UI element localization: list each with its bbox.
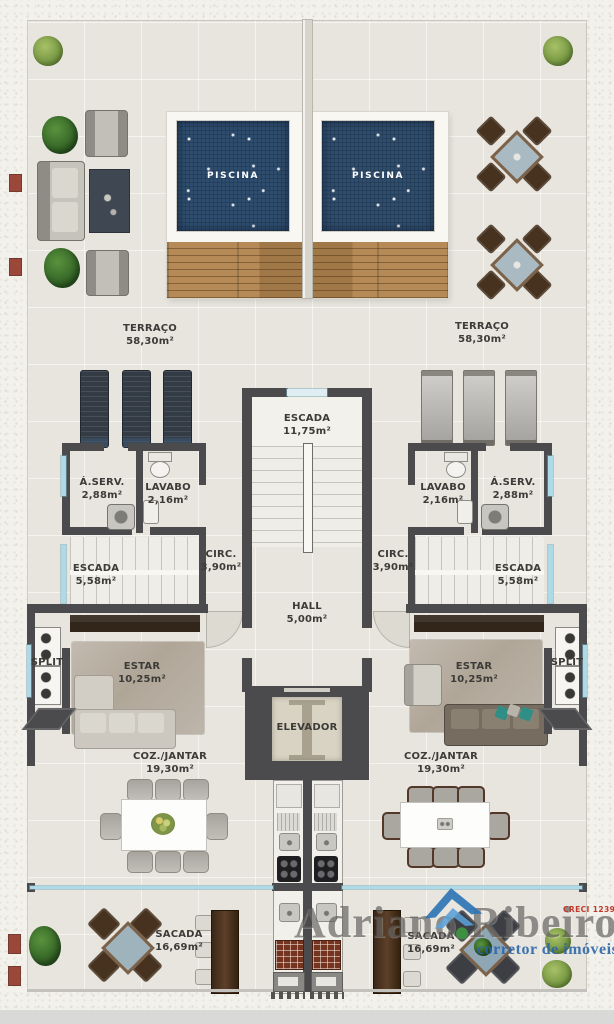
room-label-circ-left: CIRC.3,90m²: [201, 548, 242, 574]
window: [583, 645, 587, 697]
plant: [29, 926, 61, 966]
room-label-hall: HALL5,00m²: [287, 600, 328, 626]
room-label-terraco-right: TERRAÇO58,30m²: [455, 320, 509, 346]
counter-end: [311, 972, 343, 992]
page-base-strip: [0, 1010, 614, 1024]
window: [548, 456, 553, 496]
room-label-escada-social: ESCADA11,75m²: [283, 412, 331, 438]
dining-chair: [127, 779, 153, 801]
room-label-circ-right: CIRC.3,90m²: [373, 548, 414, 574]
bbq-grill: [275, 940, 304, 970]
red-marker: [9, 258, 22, 276]
centerpiece: [437, 818, 453, 830]
kitchen-sink: [316, 833, 337, 851]
sun-lounger: [505, 370, 537, 446]
room-label-elevador: ELEVADOR: [277, 721, 338, 734]
room-label-aserv-right: Á.SERV.2,88m²: [490, 476, 535, 502]
room-label-sacada-left: SACADA16,69m²: [155, 928, 203, 954]
room-label-escada-left: ESCADA5,58m²: [73, 562, 119, 588]
bar-stool: [195, 969, 213, 985]
window: [61, 456, 66, 496]
drainboard: [277, 813, 300, 831]
glass-door: [30, 886, 273, 889]
kitchen-sink: [279, 833, 300, 851]
dining-chair: [100, 813, 122, 840]
plant: [543, 36, 573, 66]
room-label-estar-right: ESTAR10,25m²: [450, 660, 498, 686]
dining-chair: [432, 846, 460, 868]
room-label-terraco-left: TERRAÇO58,30m²: [123, 322, 177, 348]
window: [548, 545, 553, 603]
room-label-split-left: SPLIT: [31, 656, 63, 669]
wall: [406, 604, 587, 613]
room-label-estar-left: ESTAR10,25m²: [118, 660, 166, 686]
window: [61, 545, 66, 603]
bar-stool: [403, 971, 421, 987]
counter-end: [273, 972, 305, 992]
red-marker: [8, 966, 21, 986]
bbq-grill: [312, 940, 341, 970]
edge-serration: [310, 992, 344, 999]
sun-lounger: [463, 370, 495, 446]
edge-serration: [271, 992, 305, 999]
room-label-lavabo-right: LAVABO2,16m²: [420, 481, 466, 507]
toilet: [446, 461, 466, 478]
cooktop: [314, 856, 338, 882]
red-marker: [8, 934, 21, 954]
stair-treads: [311, 446, 362, 547]
room-label-split-right: SPLIT: [551, 656, 583, 669]
room-label-sacada-right: SACADA16,69m²: [407, 930, 455, 956]
wall: [150, 527, 206, 535]
patio-dining-set: [478, 226, 550, 298]
room-label-lavabo-left: LAVABO2,16m²: [145, 481, 191, 507]
glass-door: [342, 886, 582, 889]
handrail: [303, 443, 313, 553]
stair-treads: [252, 446, 303, 547]
dining-chair: [457, 846, 485, 868]
ac-unit: [31, 666, 61, 705]
patio-dining-set: [92, 912, 158, 978]
wall: [408, 527, 464, 535]
dining-chair: [155, 851, 181, 873]
drainboard: [314, 813, 337, 831]
dining-chair: [407, 846, 435, 868]
room-label-coz-right: COZ./JANTAR19,30m²: [404, 750, 478, 776]
toilet: [150, 461, 170, 478]
dining-chair: [127, 851, 153, 873]
plant: [44, 248, 80, 288]
divider-wall: [303, 20, 312, 298]
sideboard: [70, 615, 200, 632]
floor-plan-page: PISCINA PISCINA TERRAÇO58,30m² TERRAÇO58…: [0, 0, 614, 1024]
room-label-escada-right: ESCADA5,58m²: [495, 562, 541, 588]
red-marker: [9, 174, 22, 192]
room-label-coz-left: COZ./JANTAR19,30m²: [133, 750, 207, 776]
cooktop: [277, 856, 301, 882]
bar-counter: [212, 911, 238, 993]
armchair: [85, 110, 128, 157]
plant: [474, 938, 492, 956]
dining-chair: [155, 779, 181, 801]
glass-door: [287, 389, 327, 396]
room-label-aserv-left: Á.SERV.2,88m²: [79, 476, 124, 502]
room-label-piscina-left: PISCINA: [207, 171, 259, 183]
wall: [362, 388, 372, 628]
wall: [311, 883, 343, 891]
elevator-symbol: [289, 755, 325, 760]
sun-lounger: [163, 370, 192, 448]
wall: [27, 604, 208, 613]
coffee-table: [89, 169, 130, 233]
elevator-door: [284, 688, 330, 692]
dining-chair: [206, 813, 228, 840]
plant: [33, 36, 63, 66]
kitchen-sink: [279, 903, 300, 922]
kitchen-cabinet: [314, 784, 340, 808]
washing-machine: [107, 504, 135, 530]
kitchen-sink: [316, 903, 337, 922]
wall: [199, 443, 206, 485]
armchair: [404, 664, 442, 706]
flower-centerpiece: [151, 813, 175, 835]
dining-chair: [183, 779, 209, 801]
dining-chair: [183, 851, 209, 873]
bar-counter: [374, 911, 400, 993]
dining-chair: [487, 812, 510, 840]
sun-lounger: [122, 370, 151, 448]
wall: [242, 388, 252, 628]
plant: [42, 116, 78, 154]
wall: [408, 443, 415, 485]
kitchen-cabinet: [276, 784, 302, 808]
sun-lounger: [421, 370, 453, 446]
sun-lounger: [80, 370, 109, 448]
sideboard: [414, 615, 544, 632]
wall: [272, 883, 304, 891]
plant: [545, 928, 571, 954]
wall: [136, 443, 143, 533]
room-label-piscina-right: PISCINA: [352, 171, 404, 183]
window: [27, 645, 31, 697]
patio-dining-set: [478, 118, 550, 190]
armchair: [86, 250, 129, 296]
washing-machine: [481, 504, 509, 530]
plant: [542, 960, 572, 988]
